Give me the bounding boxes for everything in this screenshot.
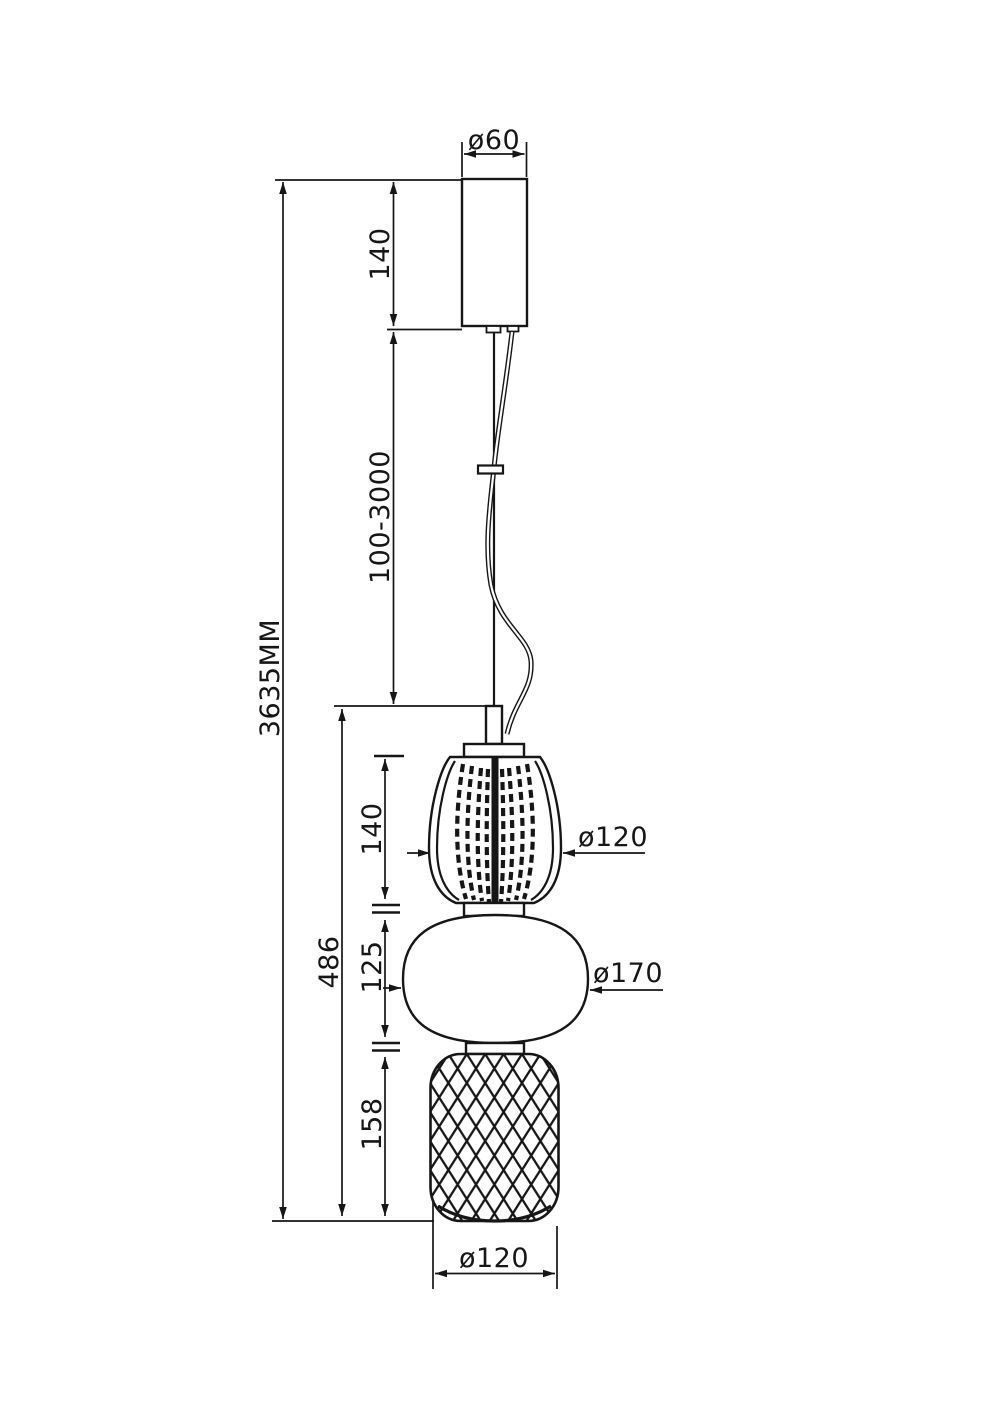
collar [464,744,524,757]
pendant-lamp-drawing: ø60 140 100-3000 3635MM 486 140 125 158 … [0,0,992,1403]
canopy-diameter-label: ø60 [468,125,520,156]
middle-shade-diameter-label: ø170 [593,958,663,989]
stem [486,706,502,744]
center-rod [492,757,499,903]
suspension-length-label: 100-3000 [365,450,396,584]
bottom-shade [431,1054,559,1221]
ceiling-canopy [462,179,527,326]
cord-exit [508,326,519,332]
overall-height-label: 3635MM [255,619,286,737]
cable-gland [487,326,501,333]
lower-connector [466,1043,524,1054]
fixture-height-label: 486 [314,935,345,988]
bottom-shade-height-label: 158 [357,1097,388,1150]
top-shade-diameter-label: ø120 [578,822,648,853]
bottom-shade-diameter-label: ø120 [459,1243,529,1274]
middle-shade-height-label: 125 [357,940,388,993]
top-shade [429,757,561,903]
cord-clip [478,466,503,474]
fixture [403,179,588,1221]
bottom-shade-net [431,1054,559,1221]
technical-drawing-page: ø60 140 100-3000 3635MM 486 140 125 158 … [0,0,992,1403]
canopy-height-label: 140 [365,227,396,280]
top-shade-height-label: 140 [357,802,388,855]
middle-shade [403,915,588,1043]
